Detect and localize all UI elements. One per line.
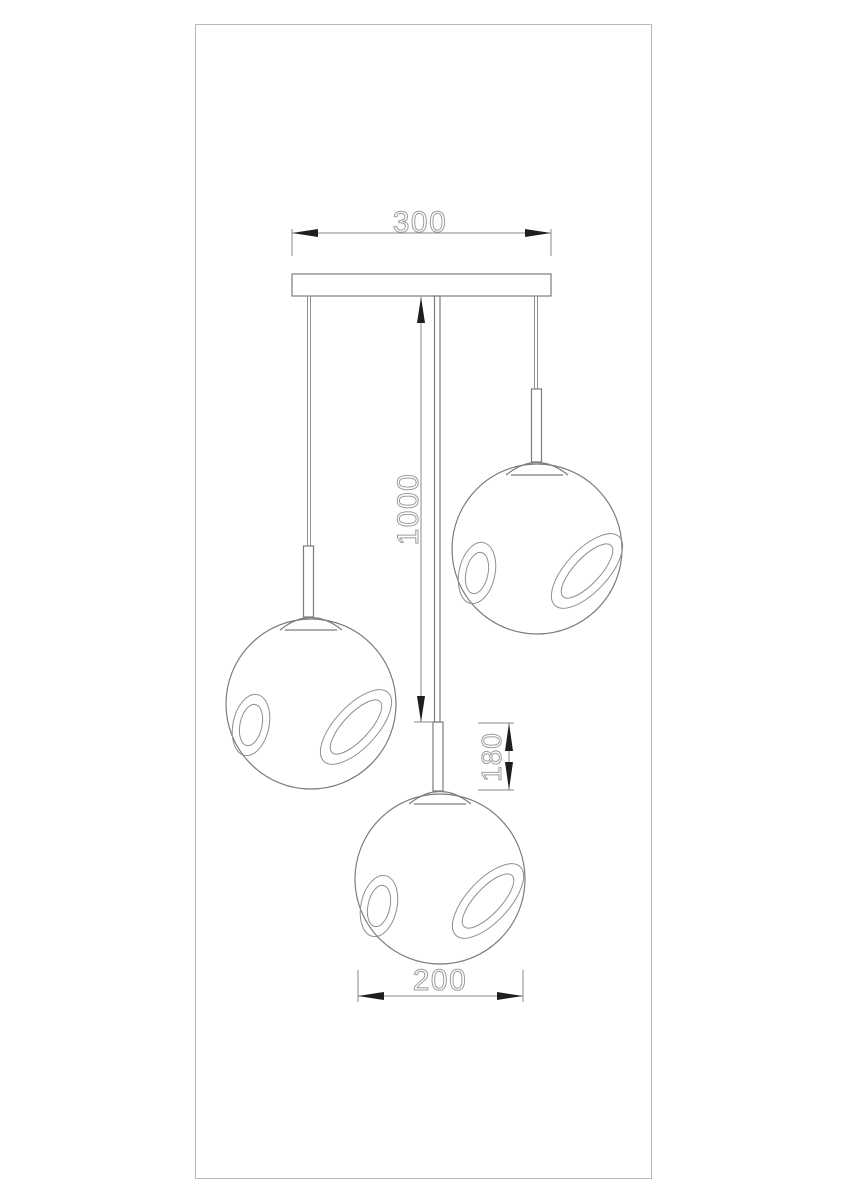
arrow-up-icon [417, 297, 425, 323]
pendant-left-stem [304, 546, 314, 617]
pendant-middle-stem [433, 722, 443, 791]
dimension-label-1000: 1000 [392, 473, 425, 546]
ceiling-canopy [292, 274, 551, 296]
pendant-right [452, 296, 634, 634]
pendant-middle-cutout-right [441, 852, 536, 949]
cutout-outer-ring [453, 539, 501, 607]
pendant-middle-rod [435, 296, 441, 722]
pendant-middle-cutout-left [355, 872, 403, 940]
cutout-inner-ring [364, 883, 394, 929]
dimension-label-300: 300 [393, 206, 448, 239]
arrow-down-icon [417, 696, 425, 722]
cutout-outer-ring [355, 872, 403, 940]
pendant-middle [355, 296, 535, 964]
arrow-right-icon [525, 229, 551, 237]
cutout-inner-ring [554, 537, 621, 606]
dimension-label-200: 200 [413, 964, 468, 997]
dimension-canopy-width: 300 [292, 206, 551, 256]
pendant-middle-cap-dome [409, 792, 471, 805]
cutout-outer-ring [309, 678, 404, 775]
arrow-left-icon [358, 992, 384, 1000]
dimension-shade-diameter: 200 [358, 964, 523, 1002]
pendant-right-stem [532, 389, 542, 462]
pendant-left-wire [308, 296, 311, 546]
pendant-left-cutout-left [227, 691, 275, 759]
cutout-outer-ring [441, 852, 536, 949]
pendant-left-cutout-right [309, 678, 404, 775]
pendant-middle-shade [355, 794, 525, 964]
dimension-label-180: 180 [476, 732, 507, 782]
cutout-inner-ring [462, 550, 492, 596]
pendant-lamp-technical-drawing: 300 1000 180 200 [0, 0, 848, 1200]
arrow-left-icon [292, 229, 318, 237]
pendant-right-cutout-left [453, 539, 501, 607]
cutout-outer-ring [227, 691, 275, 759]
dimension-stem-length: 180 [476, 723, 514, 790]
pendant-right-wire [535, 296, 538, 389]
cutout-inner-ring [236, 702, 266, 748]
pendant-right-cutout-right [540, 522, 635, 619]
arrow-right-icon [497, 992, 523, 1000]
pendant-left-shade [226, 619, 396, 789]
pendant-left [226, 296, 403, 789]
cutout-outer-ring [540, 522, 635, 619]
dimension-drop-height: 1000 [392, 297, 433, 722]
pendant-right-shade [452, 464, 622, 634]
cutout-inner-ring [323, 693, 390, 762]
